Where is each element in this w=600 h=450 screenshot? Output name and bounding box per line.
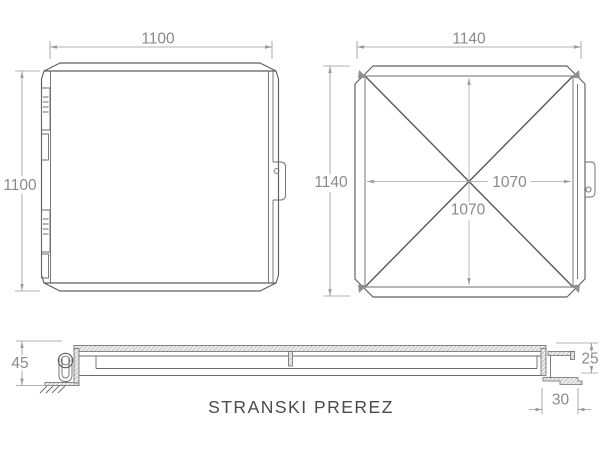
hinge-bottom-leaf bbox=[42, 254, 49, 278]
top-width-label: 1140 bbox=[452, 31, 486, 48]
arrow-up-icon bbox=[590, 343, 593, 350]
frame-lip bbox=[571, 352, 575, 360]
hinge-bottom bbox=[42, 210, 51, 278]
arrow-up-icon bbox=[328, 66, 331, 73]
hinge-top-knuckles bbox=[43, 97, 49, 112]
corner-gusset-bl bbox=[358, 285, 367, 294]
arrow-down-icon bbox=[467, 278, 470, 285]
inner-width-label: 1070 bbox=[492, 174, 527, 191]
lid-stiffener bbox=[289, 352, 293, 367]
arrow-left-icon bbox=[367, 180, 374, 183]
arrow-up-icon bbox=[20, 71, 23, 78]
flange-width-dimension: 30 bbox=[529, 388, 591, 414]
arrow-up-icon bbox=[20, 341, 23, 348]
lid-recess-lines bbox=[79, 356, 541, 376]
front-width-label: 1100 bbox=[141, 31, 175, 48]
lid-plate bbox=[74, 346, 546, 352]
latch-tab-top bbox=[585, 162, 596, 197]
top-width-dimension: 1140 bbox=[357, 31, 581, 60]
section-view: 45 25 30 STRANSKI PREREZ bbox=[11, 341, 598, 417]
hinge-top bbox=[42, 88, 51, 160]
arrow-right-icon bbox=[564, 180, 571, 183]
arrow-up-icon bbox=[467, 78, 470, 85]
top-height-dimension: 1140 bbox=[314, 66, 350, 296]
edge-height-label: 25 bbox=[581, 351, 598, 368]
drawing-sheet: 1100 1100 1140 bbox=[0, 0, 600, 450]
arrow-left-icon bbox=[50, 45, 57, 48]
top-view: 1140 1140 1070 1070 bbox=[314, 31, 595, 298]
arrow-right-icon bbox=[265, 45, 272, 48]
corner-gusset-tl bbox=[358, 70, 367, 79]
arrow-down-icon bbox=[20, 379, 23, 386]
section-height-label: 45 bbox=[11, 355, 28, 372]
arrow-left-icon bbox=[578, 408, 585, 411]
front-height-dimension: 1100 bbox=[3, 71, 40, 291]
top-height-label: 1140 bbox=[314, 174, 348, 191]
drawing-canvas: 1100 1100 1140 bbox=[0, 0, 600, 450]
front-width-dimension: 1100 bbox=[50, 31, 272, 60]
front-face-edges bbox=[51, 71, 274, 283]
arrow-down-icon bbox=[20, 284, 23, 291]
hinge-barrel bbox=[58, 353, 72, 367]
edge-height-dimension: 25 bbox=[556, 343, 599, 373]
frame-bottom-flange bbox=[543, 378, 582, 385]
section-title: STRANSKI PREREZ bbox=[208, 397, 394, 417]
lid-right-wall bbox=[541, 349, 546, 376]
frame-top-flange bbox=[548, 352, 574, 356]
ground-hatch bbox=[40, 386, 65, 393]
front-view: 1100 1100 bbox=[3, 31, 285, 292]
flange-width-label: 30 bbox=[552, 392, 570, 409]
latch-hole-top bbox=[586, 187, 591, 192]
right-frame-profile bbox=[543, 352, 582, 385]
hinge-top-body bbox=[42, 88, 51, 130]
arrow-right-icon bbox=[536, 408, 543, 411]
front-height-label: 1100 bbox=[3, 177, 37, 194]
hinge-top-leaf bbox=[42, 134, 49, 160]
arrow-left-icon bbox=[357, 45, 364, 48]
inner-height-label: 1070 bbox=[451, 202, 486, 219]
arrow-right-icon bbox=[574, 45, 581, 48]
section-height-dimension: 45 bbox=[11, 341, 62, 386]
hinge-bottom-knuckles bbox=[43, 219, 49, 234]
arrow-down-icon bbox=[328, 289, 331, 296]
front-outline bbox=[42, 63, 279, 291]
lid-left-wall bbox=[74, 349, 79, 384]
latch-tab-front bbox=[273, 162, 286, 200]
latch-tab-outline bbox=[273, 162, 286, 200]
hinge-bottom-body bbox=[42, 210, 51, 252]
